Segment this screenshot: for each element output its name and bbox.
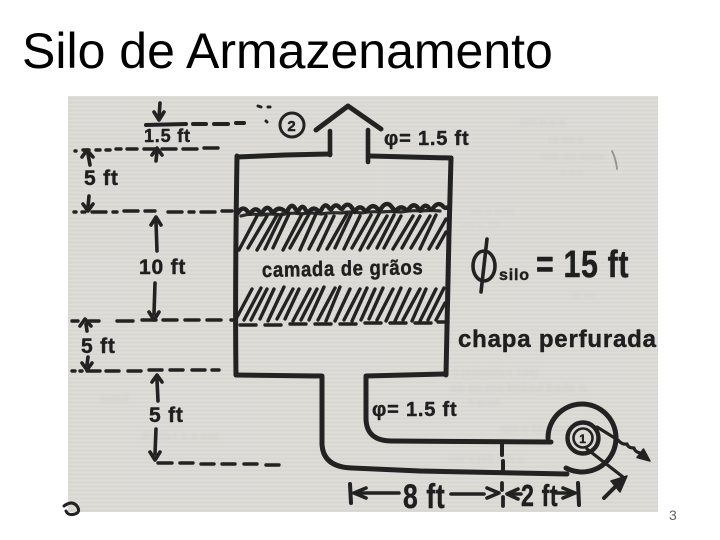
svg-text:JIsda i x s ere: JIsda i x s ere [140, 429, 219, 443]
svg-text:1: 1 [579, 432, 586, 446]
svg-text:5 ft: 5 ft [81, 335, 116, 358]
svg-text:5 ft: 5 ft [149, 404, 184, 427]
svg-text:camada de grãos: camada de grãos [262, 256, 424, 282]
svg-text:se n ons: se n ons [470, 206, 515, 218]
svg-text:1.5 ft: 1.5 ft [144, 126, 191, 146]
svg-text:2: 2 [287, 118, 296, 135]
svg-text:0 (sobndice 134): 0 (sobndice 134) [452, 367, 539, 379]
svg-text:io ve: io ve [572, 290, 595, 301]
svg-text:nsx x 122,0x3: nsx x 122,0x3 [500, 423, 571, 435]
svg-text:5 ft: 5 ft [84, 167, 119, 190]
svg-text:φ= 1.5 ft: φ= 1.5 ft [372, 399, 457, 421]
svg-text:ra so e: ra so e [548, 134, 583, 146]
svg-text:chapa perfurada: chapa perfurada [458, 326, 657, 353]
svg-text:ob so dre hobsd bado n: ob so dre hobsd bado n [450, 381, 586, 395]
svg-text:o a e: o a e [560, 168, 583, 179]
svg-text:φ= 1.5 ft: φ= 1.5 ft [384, 128, 469, 150]
svg-text:metal: metal [100, 393, 129, 405]
svg-text:nsb do nsne: nsb do nsne [540, 151, 605, 163]
svg-text:silo: silo [499, 267, 530, 284]
svg-text:su c. 10: su c. 10 [462, 220, 499, 231]
svg-text:= 15 ft: = 15 ft [536, 244, 629, 286]
svg-text:oer x (s2 x0s s: oer x (s2 x0s s [448, 453, 524, 465]
svg-text:8 ft: 8 ft [403, 478, 445, 516]
svg-text:um n.e a: um n.e a [520, 117, 566, 129]
svg-text:s o:os: s o:os [468, 397, 500, 409]
svg-text:2 ft: 2 ft [521, 478, 558, 513]
svg-text:10 ft: 10 ft [139, 256, 186, 279]
